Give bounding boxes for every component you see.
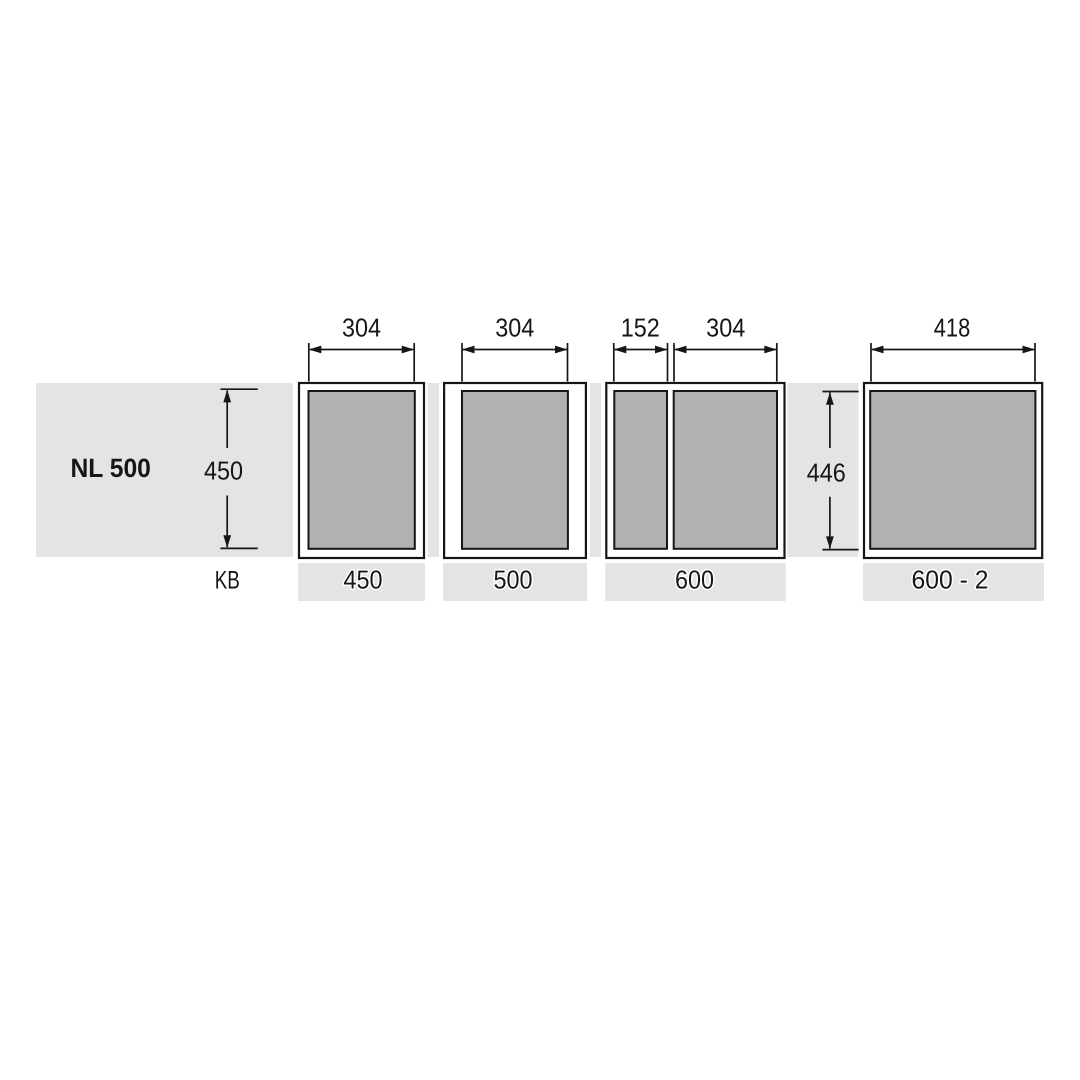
svg-text:304: 304 <box>706 313 745 343</box>
svg-text:304: 304 <box>342 313 381 343</box>
svg-text:446: 446 <box>807 457 846 487</box>
svg-text:450: 450 <box>204 455 243 485</box>
svg-text:NL 500: NL 500 <box>71 453 151 483</box>
svg-text:450: 450 <box>343 565 382 595</box>
svg-text:418: 418 <box>934 313 970 343</box>
svg-text:304: 304 <box>495 313 534 343</box>
svg-text:500: 500 <box>493 565 532 595</box>
svg-text:152: 152 <box>621 313 660 343</box>
svg-text:600: 600 <box>675 565 714 595</box>
svg-text:KB: KB <box>215 567 240 595</box>
svg-text:600 - 2: 600 - 2 <box>912 565 989 595</box>
